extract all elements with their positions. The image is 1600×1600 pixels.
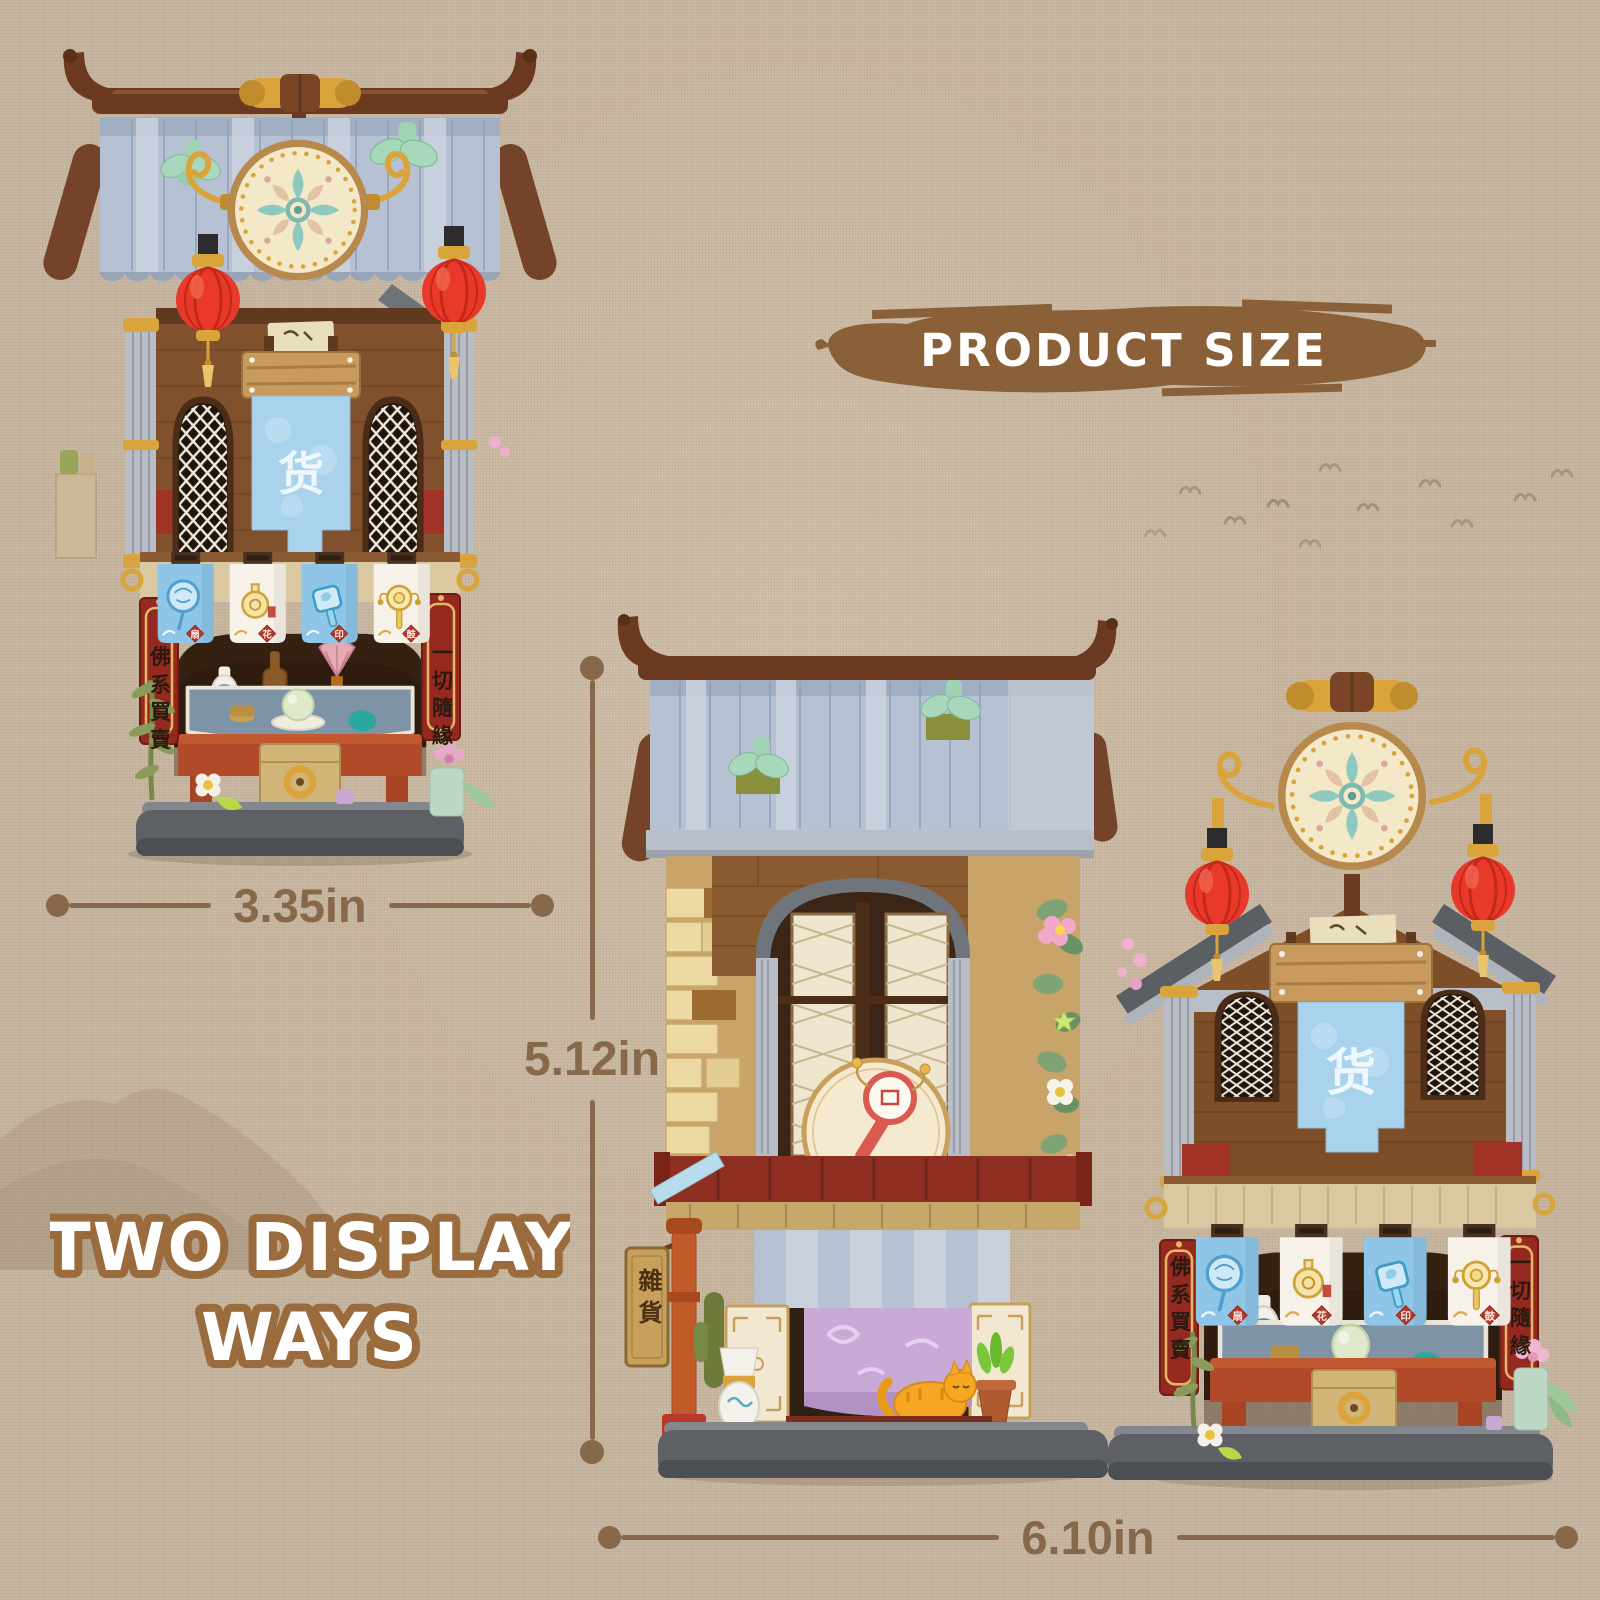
- banner-char: 货: [1326, 1044, 1376, 1102]
- purple-pot: [336, 790, 354, 804]
- blossom-decor: [489, 436, 501, 448]
- dimension-endpoint: [1555, 1526, 1578, 1549]
- left-shop: [618, 614, 1120, 1486]
- olive-plant: [694, 1292, 724, 1388]
- drum-sign: [231, 143, 364, 276]
- display-base: [1108, 1426, 1553, 1490]
- white-flower-icon: [1047, 1079, 1073, 1105]
- dimension-endpoint: [580, 656, 604, 680]
- right-shop: 货: [1108, 672, 1578, 1490]
- bird-flock-icon: [1120, 448, 1590, 598]
- single-product-photo: 货: [40, 38, 560, 870]
- dimension-endpoint: [598, 1526, 621, 1549]
- caption-line1: TWO DISPLAY: [50, 1209, 570, 1286]
- couplet-left-text: 佛系買賣: [147, 644, 174, 755]
- chef-hat-vase: [719, 1348, 759, 1430]
- dimension-label: 3.35in: [211, 882, 388, 929]
- pair-product-photo: 货: [608, 592, 1578, 1492]
- paper-note: [267, 321, 334, 353]
- product-size-infographic: 扇 花: [0, 0, 1600, 1600]
- dimension-single-width: 3.35in: [46, 882, 554, 928]
- dimension-line: [590, 1100, 595, 1440]
- dimension-line: [621, 1535, 999, 1540]
- drum-sign: [1282, 726, 1423, 867]
- dimension-line: [389, 903, 531, 908]
- wooden-plank-sign: [242, 352, 360, 398]
- caption-line2: WAYS: [201, 1299, 419, 1376]
- dimension-line: [1177, 1535, 1555, 1540]
- dimension-endpoint: [46, 894, 69, 917]
- wooden-plank-sign: [1270, 944, 1432, 1002]
- pink-flower-pot: [430, 742, 496, 816]
- dimension-pair-width: 6.10in: [598, 1512, 1578, 1562]
- pillar-left: [123, 318, 159, 568]
- paper-note: [1310, 915, 1397, 946]
- two-display-ways-caption: TWO DISPLAY WAYS: [50, 1188, 570, 1398]
- display-base: [658, 1416, 1108, 1486]
- roof: [618, 614, 1118, 858]
- banner-char: 货: [278, 447, 324, 501]
- couplet-right-text: 一切隨緣: [1507, 1250, 1534, 1361]
- dimension-line: [590, 680, 595, 1020]
- dimension-line: [69, 903, 211, 908]
- stall-band: [1147, 1176, 1553, 1228]
- dimension-label: 5.12in: [524, 1020, 660, 1100]
- display-base: [128, 802, 472, 866]
- gold-top-bar: [1286, 672, 1418, 712]
- couplet-left-text: 佛系買賣: [1167, 1254, 1194, 1365]
- dimension-endpoint: [580, 1440, 604, 1464]
- couplet-right-text: 一切隨緣: [429, 640, 456, 751]
- side-shelf: [56, 450, 96, 558]
- pillar-right: [441, 318, 477, 568]
- tan-beam: [666, 1202, 1080, 1230]
- dimension-label: 6.10in: [999, 1514, 1176, 1561]
- gold-top-bar: [239, 74, 361, 112]
- header-brush-banner: PRODUCT SIZE: [812, 280, 1442, 420]
- purple-cup: [1486, 1416, 1502, 1430]
- header-title: PRODUCT SIZE: [920, 324, 1328, 377]
